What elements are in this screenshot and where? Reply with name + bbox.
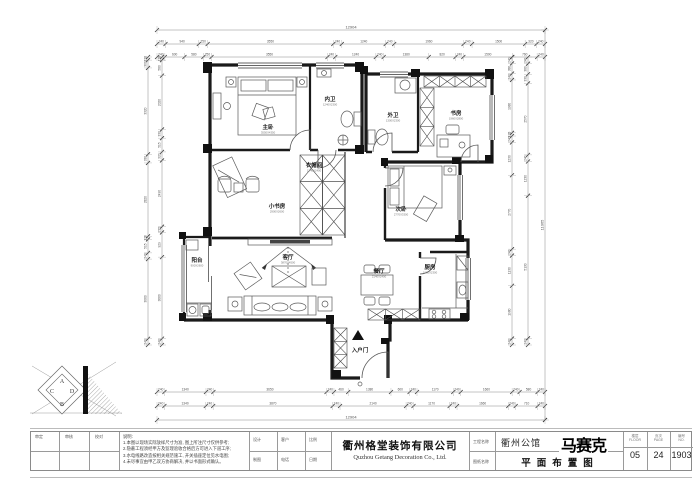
dimension-label: 3060: [144, 295, 148, 302]
dimension-label: 3650: [266, 388, 273, 392]
titleblock-cell-label: 电话: [281, 457, 289, 463]
dimension-label: 240: [465, 40, 471, 44]
dimension-label: 600: [398, 388, 404, 392]
brand-logo-text: 马赛克: [559, 432, 608, 456]
dimension-label: 760: [522, 53, 528, 57]
dimension-label: 240: [508, 249, 512, 255]
dimension-label: 330: [524, 76, 528, 82]
dimension-label: 240: [538, 40, 544, 44]
dimension-label: 11065: [540, 219, 545, 231]
dimension-label: 1230: [524, 175, 528, 182]
value-box-label: 楼层FLOOR: [624, 434, 646, 442]
project-name: 衢州公馆: [501, 436, 541, 449]
room-sublabel: 900X2600: [191, 264, 204, 268]
dimension-label: 12904: [345, 25, 357, 30]
living-room-furniture: [228, 239, 332, 315]
dimension-label: 1660: [479, 402, 486, 406]
dimension-label: 940: [179, 40, 185, 44]
dimension-label: 1230: [508, 155, 512, 162]
dimension-label: 12904: [345, 415, 357, 420]
dimension-label: 515: [144, 243, 148, 249]
dimension-label: 240: [158, 388, 164, 392]
room-sublabel: 1960X2800: [449, 117, 464, 121]
titleblock-cell-label: 比例: [309, 437, 317, 443]
dimension-label: 600: [172, 53, 178, 57]
balcony-fixtures: [186, 240, 212, 316]
notes-line: 4.未尽事宜由甲乙双方协商解决, 并以书面形式确认。: [123, 459, 224, 464]
dimension-label: 1380: [366, 388, 373, 392]
dimension-label: 240: [158, 339, 162, 345]
dimension-label: 120: [144, 235, 148, 241]
dimension-label: 380: [524, 66, 528, 72]
dimension-label: 240: [329, 53, 335, 57]
dimension-label: 120: [508, 132, 512, 138]
dimension-label: 240: [508, 74, 512, 80]
dimension-label: 1240: [352, 53, 359, 57]
dimension-label: 240: [334, 402, 340, 406]
dimension-label: 1980: [507, 308, 511, 315]
dimension-label: 240: [508, 339, 512, 345]
page-number: 24: [647, 450, 670, 460]
dimension-label: 320: [528, 40, 534, 44]
logo-letter: A: [60, 379, 65, 385]
dimension-label: 2770: [508, 208, 512, 215]
sheet-rule-top: [30, 428, 692, 429]
drawing-name-label: 图纸名称: [473, 459, 489, 465]
dimension-label: 240: [508, 136, 512, 142]
notes-line: 2.隐蔽工程须经甲方及监理验收合格后方可进入下道工序;: [123, 446, 231, 451]
dimension-label: 330: [158, 131, 162, 137]
dimension-label: 1340: [182, 388, 189, 392]
room-label: 入户门: [351, 346, 369, 354]
logo-letter: D: [70, 389, 75, 395]
dimension-label: 240: [335, 40, 341, 44]
notes-line: 1.本图以现场实际放样尺寸为准, 图上所注尺寸仅供参考;: [123, 440, 229, 445]
dimension-label: 3550: [267, 40, 274, 44]
dimension-label: 240: [539, 388, 545, 392]
dimension-label: 820: [439, 53, 445, 57]
room-sublabel: 2900X2600: [270, 210, 285, 214]
dimension-label: 320: [158, 153, 162, 159]
dimension-label: 1170: [432, 388, 439, 392]
titleblock-cell-label: 制图: [253, 457, 261, 463]
dimension-label: 120: [158, 56, 162, 62]
room-sublabel: 1660X2300: [423, 271, 438, 275]
dimension-label: 3060: [158, 294, 162, 301]
dimension-label: 2490: [158, 190, 162, 197]
dimension-label: 240: [144, 253, 148, 259]
dimension-label: 240: [158, 402, 164, 406]
room-sublabel: 2140X2400: [372, 275, 387, 279]
study-desk: [437, 125, 470, 157]
dimension-label: 580: [158, 65, 162, 71]
dimension-label: 1980: [508, 103, 512, 110]
titleblock-cell-label: 校对: [95, 434, 103, 440]
dimension-label: 240: [207, 388, 213, 392]
dimension-label: 240: [509, 402, 515, 406]
dimension-label: 240: [407, 402, 413, 406]
dimension-label: 1340: [182, 402, 189, 406]
dimension-label: 240: [451, 402, 457, 406]
dimension-label: 240: [411, 388, 417, 392]
floor-number: 05: [623, 450, 647, 460]
dimension-label: 240: [513, 388, 519, 392]
dimension-label: 240: [454, 388, 460, 392]
dimension-label: 215: [158, 227, 162, 233]
logo-letter: B: [60, 402, 64, 408]
small-study-furniture: [213, 157, 259, 198]
dimension-label: 240: [524, 57, 528, 63]
notes-line: 3.水电线路改造按相关规范施工, 开关插座定位见水电图;: [123, 453, 229, 458]
dimension-label: 5130: [524, 263, 528, 270]
company-name-en: Quzhou Getang Decoration Co., Ltd.: [331, 454, 469, 461]
dimension-label: 120: [144, 56, 148, 62]
sheet-rule-bottom: [30, 477, 692, 478]
titleblock-cell-label: 审定: [35, 434, 43, 440]
value-box-label: 编号NO.: [671, 434, 692, 442]
dimension-label: 3870: [269, 402, 276, 406]
dimension-label: 2820: [144, 196, 148, 203]
titleblock-cell-label: 审核: [65, 434, 73, 440]
dimension-label: 710: [524, 402, 530, 406]
project-name-label: 工程名称: [473, 439, 489, 445]
inner-bath-fixtures: [317, 69, 361, 145]
floorplan-drawing: 1290424094025035502401240240196024015003…: [0, 0, 700, 487]
company-name-cn: 衢州格堂装饰有限公司: [331, 438, 469, 453]
dimension-label: 929: [158, 242, 162, 248]
dimension-label: 1960: [425, 40, 432, 44]
dimension-label: 580: [191, 53, 197, 57]
dimension-label: 2570: [524, 115, 528, 122]
dimension-label: 515: [158, 142, 162, 148]
room-sublabel: 1240X2400: [307, 169, 322, 173]
room-sublabel: 2770X3300: [394, 213, 409, 217]
dimension-label: 240: [457, 53, 463, 57]
dimension-label: 2020: [158, 99, 162, 106]
dimension-label: 1170: [428, 402, 435, 406]
dimension-label: 240: [144, 339, 148, 345]
room-sublabel: 3870X4500: [281, 261, 296, 265]
dimension-chains: 1290424094025035502401240240196024015003…: [144, 25, 550, 425]
dimension-label: 240: [538, 53, 544, 57]
drawing-number: 1903: [670, 450, 693, 460]
drawing-sheet: 1290424094025035502401240240196024015003…: [0, 0, 700, 487]
notes-block: 说明: 1.本图以现场实际放样尺寸为准, 图上所注尺寸仅供参考; 2.隐蔽工程须…: [123, 434, 247, 465]
windows-layer: [182, 63, 495, 313]
walls-layer: [184, 65, 492, 378]
title-block: 审定 审核 校对 说明: 1.本图以现场实际放样尺寸为准, 图上所注尺寸仅供参考…: [30, 431, 692, 471]
dimension-label: 240: [159, 40, 165, 44]
dimension-label: 1240: [360, 40, 367, 44]
dimension-label: 240: [524, 155, 528, 161]
dimension-label: 2140: [370, 402, 377, 406]
dimension-label: 380: [508, 66, 512, 72]
dimension-label: 1380: [403, 53, 410, 57]
room-sublabel: 1240X2300: [323, 103, 338, 107]
titleblock-cell-label: 客户: [281, 437, 289, 443]
dimension-label: 250: [201, 40, 207, 44]
logo-letter: C: [50, 389, 54, 395]
drawing-title: 平面布置图: [497, 455, 623, 469]
dimension-label: 240: [377, 53, 383, 57]
room-sublabel: 3550X4350: [261, 131, 276, 135]
dimension-label: 1500: [484, 53, 491, 57]
dimension-label: 3320: [144, 107, 148, 114]
dimension-label: 250: [205, 53, 211, 57]
dimension-label: 240: [387, 40, 393, 44]
dimension-label: 1500: [495, 40, 502, 44]
dimension-label: 240: [508, 57, 512, 63]
dimension-label: 240: [207, 402, 213, 406]
dimension-label: 240: [539, 402, 545, 406]
dimension-label: 330: [144, 156, 148, 162]
value-box-label: 页次PAGE: [648, 434, 669, 442]
dimension-label: 300: [144, 61, 148, 67]
room-sublabel: 1300X2300: [386, 119, 401, 123]
dimension-label: 3550: [266, 53, 273, 57]
dimension-label: 1660: [483, 388, 490, 392]
notes-title: 说明:: [123, 434, 133, 439]
dimension-label: 1130: [508, 267, 512, 274]
north-logo: A D B C: [30, 362, 122, 416]
kitchen-fixtures: [422, 254, 468, 319]
dimension-label: 580: [526, 388, 532, 392]
dimension-label: 240: [524, 339, 528, 345]
dimension-label: 240: [328, 388, 334, 392]
dimension-label: 460: [338, 388, 344, 392]
titleblock-cell-label: 设计: [253, 437, 261, 443]
titleblock-cell-label: 日期: [309, 457, 317, 463]
